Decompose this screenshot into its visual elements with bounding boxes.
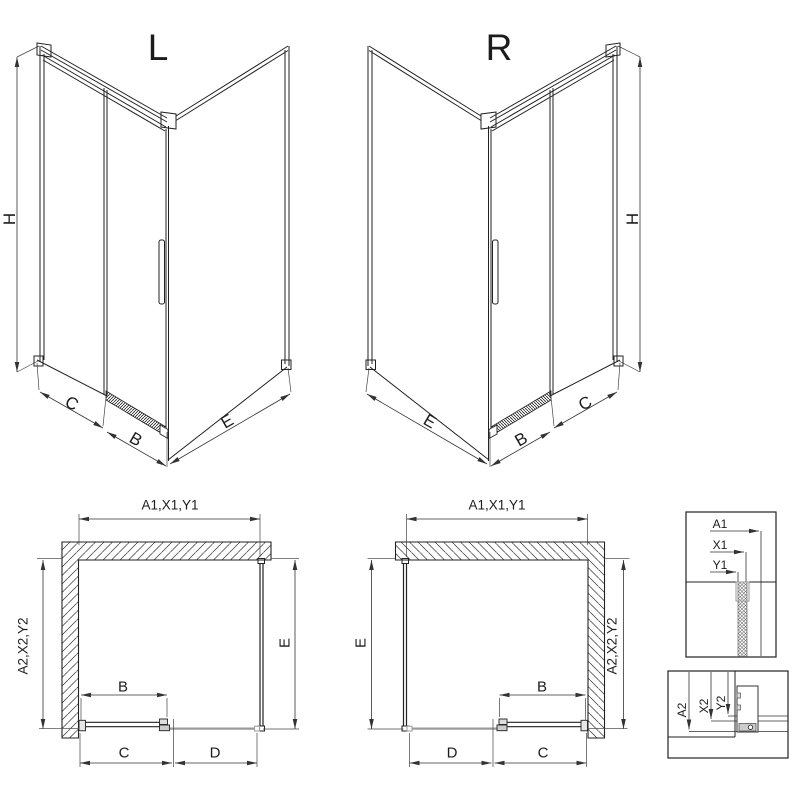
plan-left-door-dim: B — [118, 678, 128, 695]
plan-right-d-dim: D — [447, 744, 458, 761]
plan-left-c-dim: C — [119, 744, 130, 761]
detail-y1-label: Y1 — [713, 558, 728, 572]
plan-right-depth-dim: E — [352, 638, 369, 648]
plan-left-depth-dim: E — [276, 638, 293, 648]
detail-a2-label: A2 — [675, 702, 689, 717]
plan-right-side-dim: A2,X2,Y2 — [605, 617, 620, 674]
plan-right-c-dim: C — [538, 744, 549, 761]
detail-x2-label: X2 — [697, 698, 711, 713]
plan-right-door-dim: B — [537, 678, 547, 695]
plan-left-top-dim: A1,X1,Y1 — [141, 498, 198, 513]
detail-a1-label: A1 — [713, 517, 728, 531]
plan-left-side-dim: A2,X2,Y2 — [16, 617, 31, 674]
view-title-left: L — [148, 27, 169, 68]
plan-right-top-dim: A1,X1,Y1 — [468, 498, 525, 513]
technical-drawing-sheet: L H C B E R H E B C A1,X1,Y1 A2,X2,Y2 E … — [0, 0, 800, 800]
dim-label-height-left: H — [0, 213, 19, 225]
shower-enclosure-diagram: L H C B E R H E B C A1,X1,Y1 A2,X2,Y2 E … — [0, 0, 800, 800]
view-title-right: R — [486, 27, 513, 68]
detail-y2-label: Y2 — [714, 695, 728, 710]
plan-left-d-dim: D — [210, 744, 221, 761]
detail-x1-label: X1 — [713, 538, 728, 552]
dim-label-height-right: H — [623, 213, 642, 225]
